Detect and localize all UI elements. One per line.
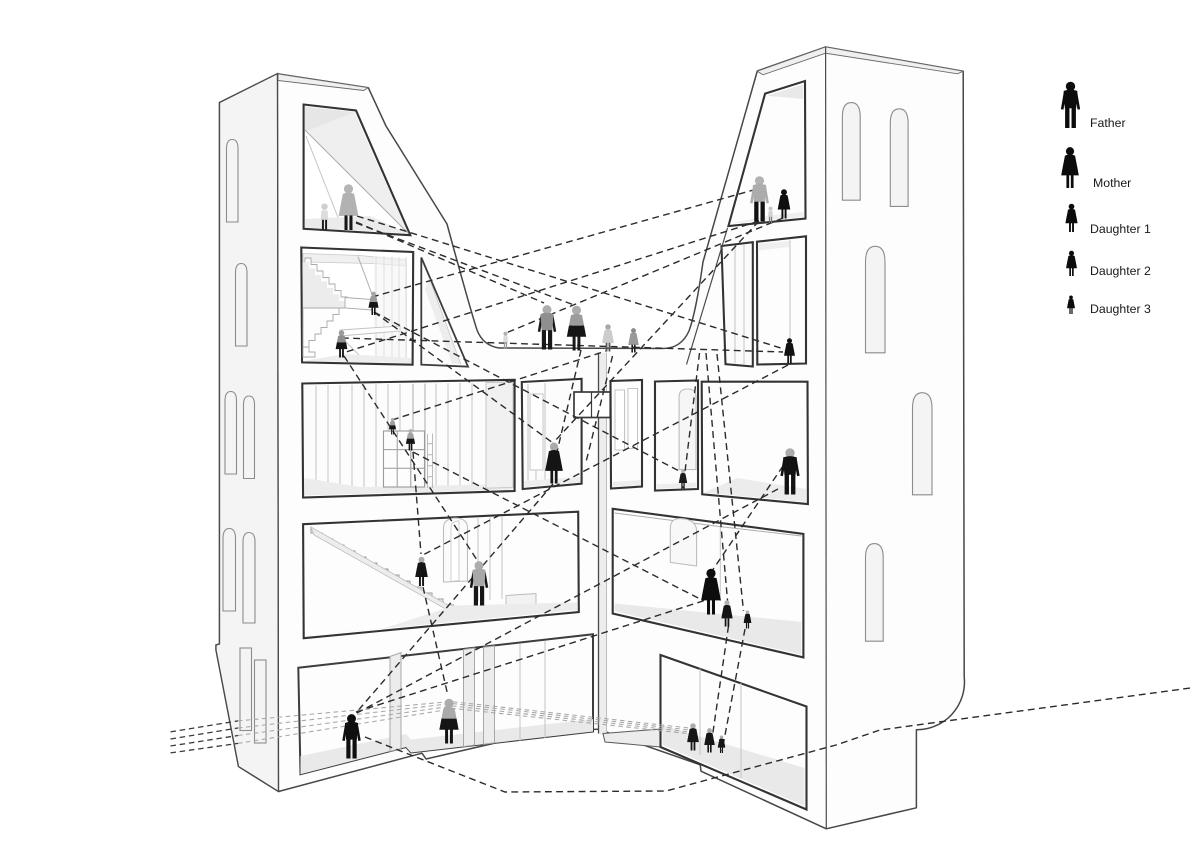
svg-text:Daughter 1: Daughter 1 [1090, 222, 1151, 236]
svg-text:Daughter 3: Daughter 3 [1090, 302, 1151, 316]
svg-text:Father: Father [1090, 116, 1126, 130]
svg-text:Mother: Mother [1093, 176, 1131, 190]
svg-text:Daughter 2: Daughter 2 [1090, 264, 1151, 278]
